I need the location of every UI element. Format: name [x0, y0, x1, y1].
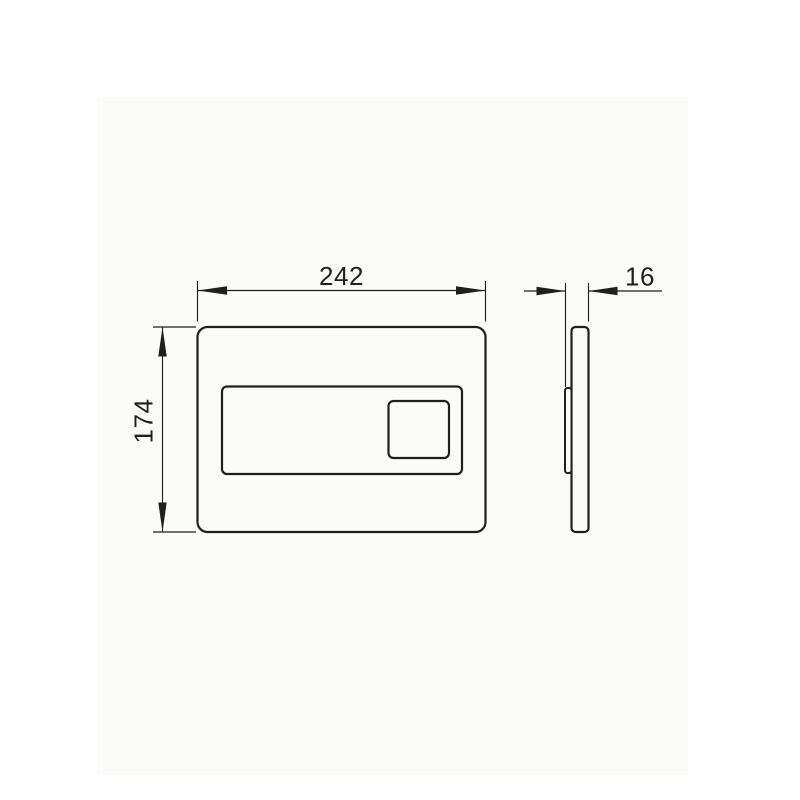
thickness-dimension-label: 16 — [625, 262, 655, 292]
width-dimension-label: 242 — [319, 261, 364, 291]
height-dimension-label: 174 — [129, 399, 159, 444]
flush-plate-dimension-drawing: 242 174 16 — [0, 0, 800, 800]
image-background-panel — [97, 97, 688, 775]
button-protrusion-side — [565, 388, 572, 473]
technical-drawing-page: 242 174 16 — [0, 0, 800, 800]
